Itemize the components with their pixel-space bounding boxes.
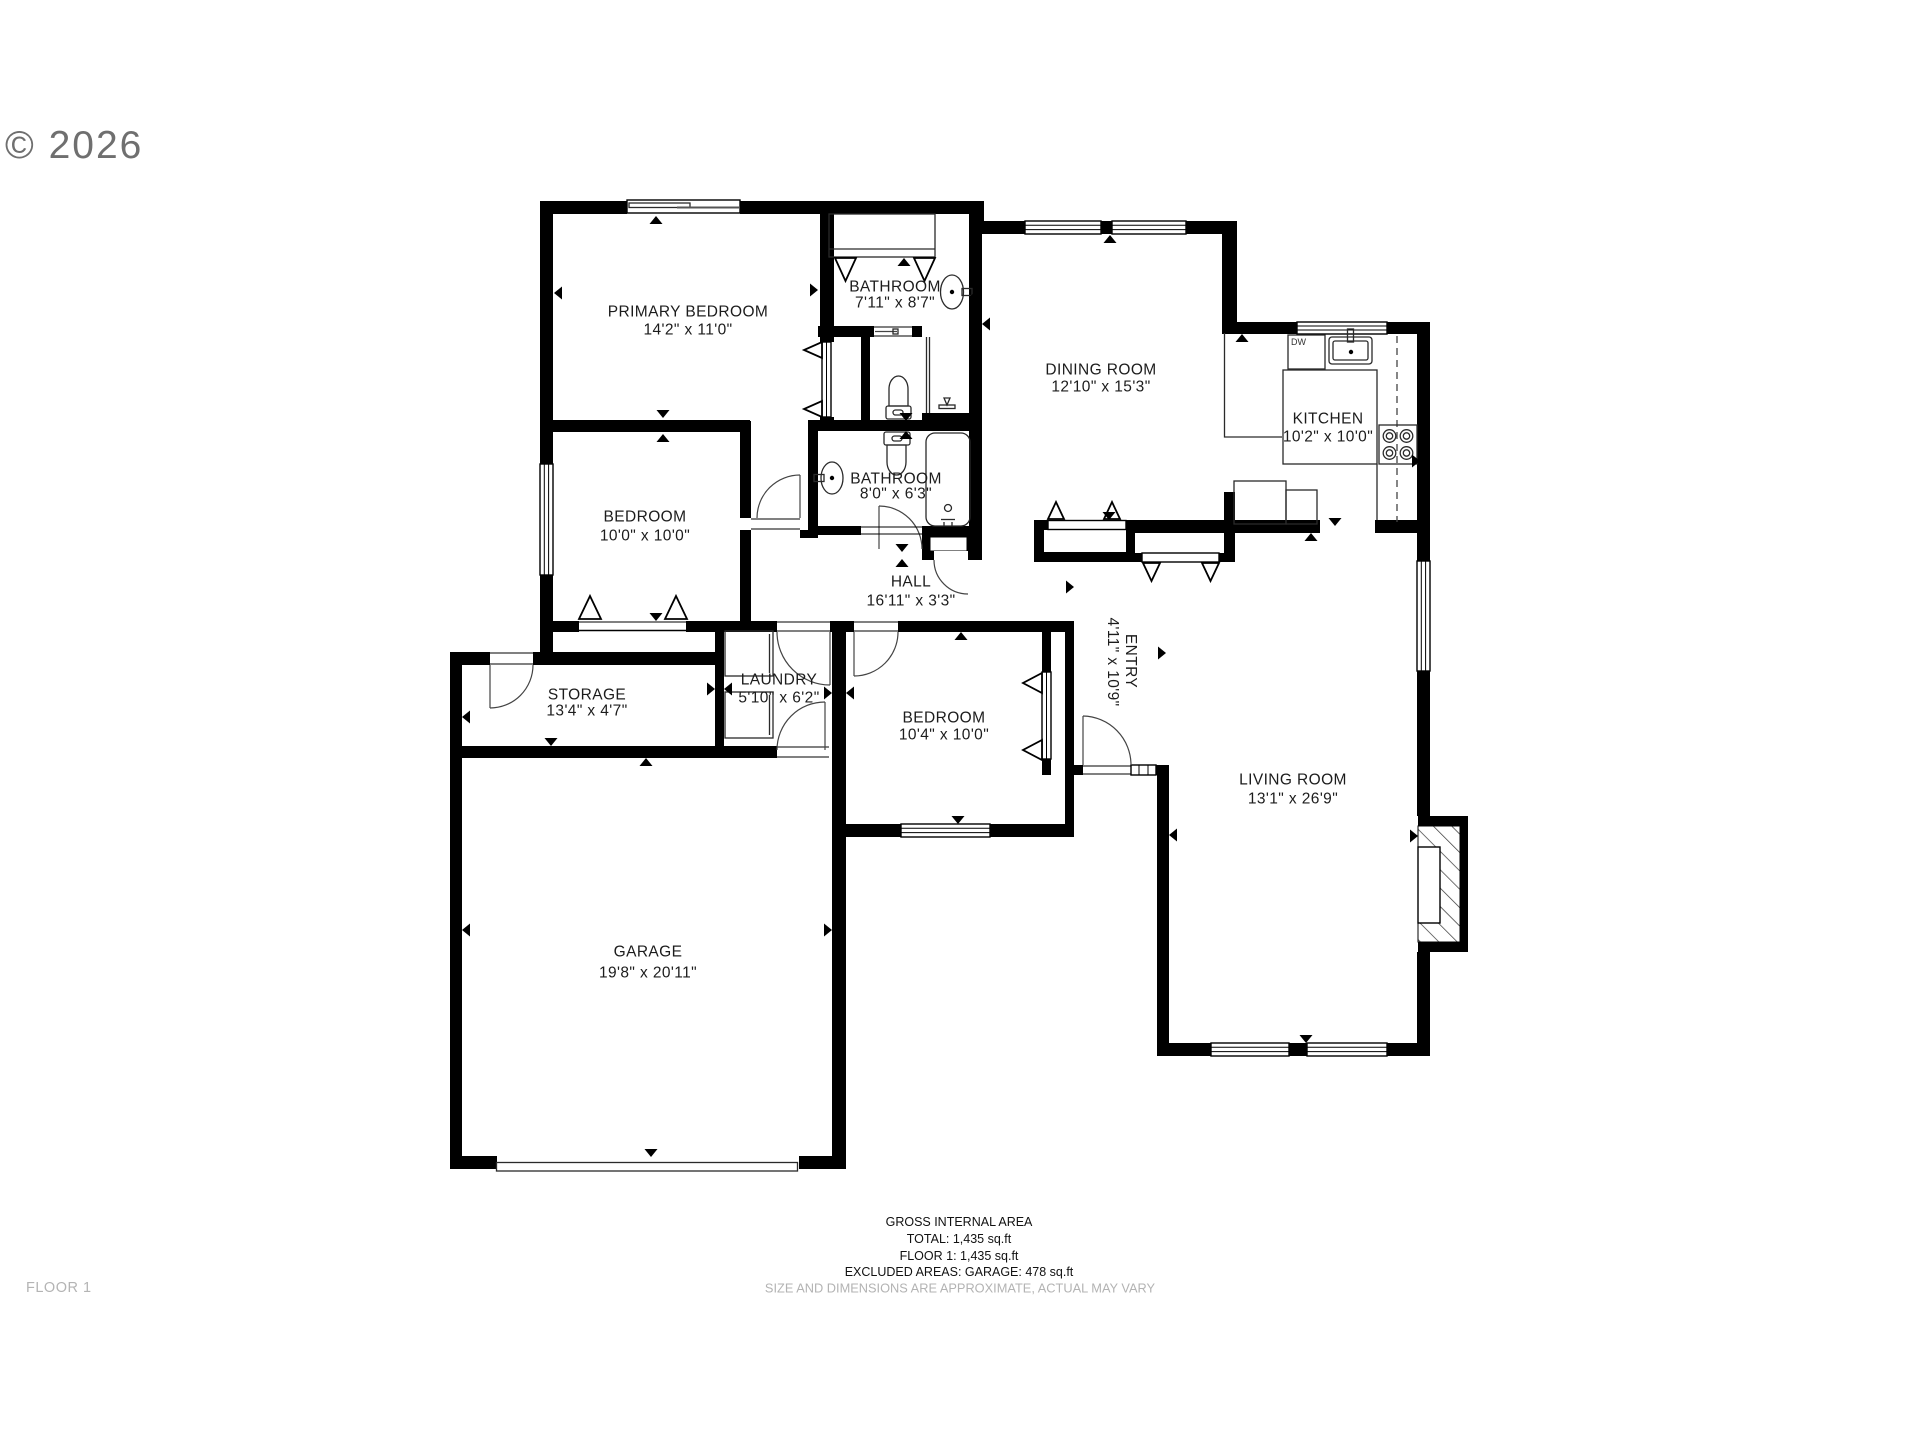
- svg-text:TOTAL: 1,435 sq.ft: TOTAL: 1,435 sq.ft: [907, 1232, 1012, 1246]
- svg-text:GARAGE: GARAGE: [614, 944, 683, 961]
- svg-text:13'4" x 4'7": 13'4" x 4'7": [546, 703, 627, 720]
- svg-text:BEDROOM: BEDROOM: [604, 509, 687, 526]
- svg-text:EXCLUDED AREAS: GARAGE: 478 sq: EXCLUDED AREAS: GARAGE: 478 sq.ft: [845, 1265, 1074, 1279]
- svg-text:14'2" x 11'0": 14'2" x 11'0": [643, 322, 732, 339]
- svg-text:8'0" x 6'3": 8'0" x 6'3": [860, 486, 932, 503]
- svg-text:HALL: HALL: [891, 574, 931, 591]
- svg-text:BATHROOM: BATHROOM: [849, 279, 941, 296]
- svg-text:LAUNDRY: LAUNDRY: [741, 672, 818, 689]
- svg-text:LIVING ROOM: LIVING ROOM: [1239, 772, 1347, 789]
- svg-text:4'11" x 10'9": 4'11" x 10'9": [1104, 617, 1121, 706]
- svg-text:KITCHEN: KITCHEN: [1293, 411, 1364, 428]
- svg-text:7'11" x 8'7": 7'11" x 8'7": [855, 295, 935, 312]
- svg-text:DW: DW: [1291, 337, 1306, 347]
- svg-text:PRIMARY BEDROOM: PRIMARY BEDROOM: [608, 304, 768, 321]
- svg-text:12'10" x 15'3": 12'10" x 15'3": [1051, 379, 1150, 396]
- svg-text:GROSS INTERNAL AREA: GROSS INTERNAL AREA: [886, 1215, 1033, 1229]
- svg-text:10'4" x 10'0": 10'4" x 10'0": [899, 727, 989, 744]
- svg-text:FLOOR 1: FLOOR 1: [26, 1280, 92, 1296]
- svg-text:ENTRY: ENTRY: [1122, 634, 1139, 688]
- svg-text:16'11" x 3'3": 16'11" x 3'3": [866, 593, 955, 610]
- svg-text:13'1" x 26'9": 13'1" x 26'9": [1248, 791, 1338, 808]
- svg-text:10'0" x 10'0": 10'0" x 10'0": [600, 528, 690, 545]
- svg-text:10'2" x 10'0": 10'2" x 10'0": [1283, 429, 1373, 446]
- svg-text:19'8" x 20'11": 19'8" x 20'11": [599, 965, 697, 982]
- svg-text:FLOOR 1: 1,435 sq.ft: FLOOR 1: 1,435 sq.ft: [900, 1249, 1019, 1263]
- svg-text:5'10" x 6'2": 5'10" x 6'2": [738, 690, 819, 707]
- svg-text:SIZE AND DIMENSIONS ARE APPROX: SIZE AND DIMENSIONS ARE APPROXIMATE, ACT…: [765, 1281, 1156, 1296]
- svg-text:STORAGE: STORAGE: [548, 687, 626, 704]
- svg-text:DINING ROOM: DINING ROOM: [1045, 362, 1156, 379]
- svg-text:BEDROOM: BEDROOM: [903, 710, 986, 727]
- svg-text:© 2026: © 2026: [5, 124, 143, 167]
